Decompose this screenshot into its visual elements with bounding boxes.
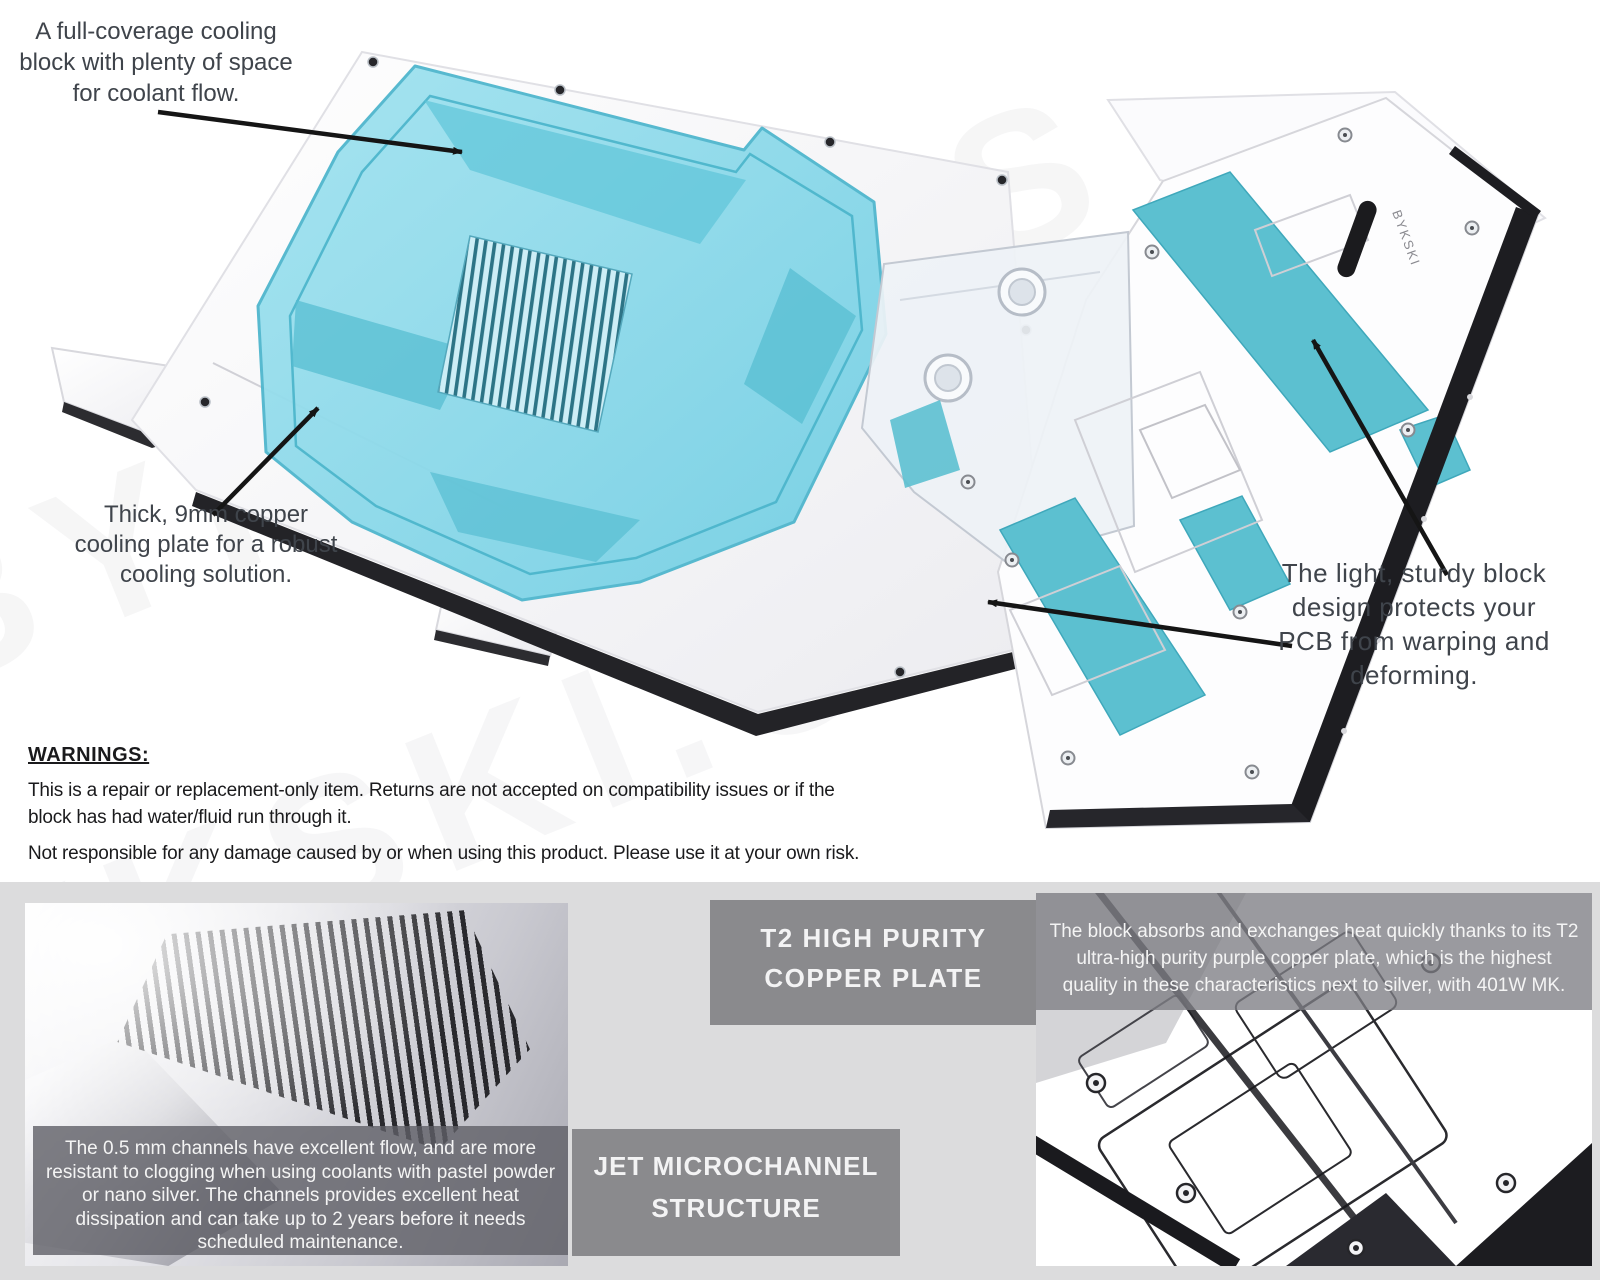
warnings-heading: WARNINGS: [28, 744, 988, 767]
microchannel-caption: The 0.5 mm channels have excellent flow,… [33, 1126, 568, 1255]
callout-line: A full-coverage cooling [0, 16, 312, 47]
callout-line: for coolant flow. [0, 78, 312, 109]
caption-line: scheduled maintenance. [33, 1231, 568, 1255]
callout-line: cooling solution. [40, 560, 372, 590]
caption-line: The 0.5 mm channels have excellent flow,… [33, 1137, 568, 1161]
callout-copper-plate: Thick, 9mm copper cooling plate for a ro… [40, 500, 372, 590]
callout-line: deforming. [1244, 658, 1584, 692]
callout-coolant-flow: A full-coverage cooling block with plent… [0, 16, 312, 109]
caption-line: resistant to clogging when using coolant… [33, 1161, 568, 1185]
microchannel-photo: The 0.5 mm channels have excellent flow,… [25, 903, 568, 1266]
caption-line: The block absorbs and exchanges heat qui… [1036, 918, 1592, 945]
warnings-section: WARNINGS: This is a repair or replacemen… [28, 744, 988, 867]
caption-line: ultra-high purity purple copper plate, w… [1036, 945, 1592, 972]
feature-title-box-jet: JET MICROCHANNEL STRUCTURE [572, 1129, 900, 1256]
caption-line: quality in these characteristics next to… [1036, 972, 1592, 999]
callout-line: Thick, 9mm copper [40, 500, 372, 530]
pcb-side-photo: The block absorbs and exchanges heat qui… [1036, 893, 1592, 1266]
features-band: The 0.5 mm channels have excellent flow,… [0, 882, 1600, 1280]
callout-line: cooling plate for a robust [40, 530, 372, 560]
callout-line: design protects your [1244, 590, 1584, 624]
warning-line: This is a repair or replacement-only ite… [28, 777, 988, 804]
feature-title-box-copper: T2 HIGH PURITY COPPER PLATE [710, 900, 1037, 1025]
feature-title-line: JET MICROCHANNEL [572, 1145, 900, 1187]
warning-line: Not responsible for any damage caused by… [28, 840, 988, 867]
warning-line: block has had water/fluid run through it… [28, 804, 988, 831]
caption-line: dissipation and can take up to 2 years b… [33, 1208, 568, 1232]
callout-block-design: The light, sturdy block design protects … [1244, 556, 1584, 692]
feature-title-line: COPPER PLATE [710, 958, 1037, 998]
feature-title-line: T2 HIGH PURITY [710, 918, 1037, 958]
callout-line: block with plenty of space [0, 47, 312, 78]
copper-plate-caption: The block absorbs and exchanges heat qui… [1036, 893, 1592, 1010]
product-infographic: BYKSKI.US BYKSKI.US [0, 0, 1600, 1280]
feature-title-line: STRUCTURE [572, 1187, 900, 1229]
caption-line: or nano silver. The channels provides ex… [33, 1184, 568, 1208]
callout-line: PCB from warping and [1244, 624, 1584, 658]
callout-line: The light, sturdy block [1244, 556, 1584, 590]
